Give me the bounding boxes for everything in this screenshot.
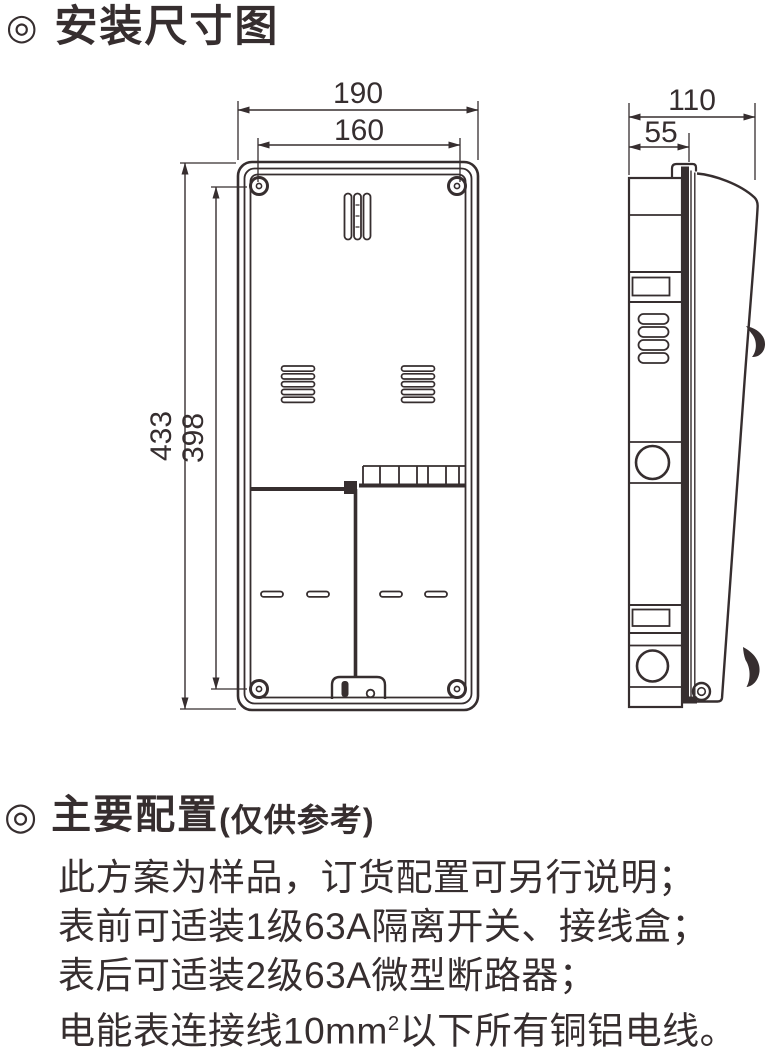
dim-label-110: 110 (668, 84, 716, 117)
terminal-strip (359, 466, 466, 486)
cable-knockout-bottom (637, 651, 668, 682)
configuration-section-header: ◎ 主要配置 (仅供参考) (4, 795, 375, 842)
side-view (629, 164, 765, 707)
config-line-4-suffix: 以下所有铜铝电线。 (400, 1010, 738, 1047)
mounting-screw (251, 681, 268, 698)
mounting-screw (449, 178, 466, 195)
side-section-lines (629, 215, 681, 687)
installation-dimension-drawing: 190 160 433 398 110 (0, 0, 767, 785)
din-bracket-bottom (629, 605, 682, 633)
side-vent-slots (639, 314, 669, 363)
bullseye-icon: ◎ (4, 798, 37, 836)
dim-label-160: 160 (334, 114, 384, 147)
dim-front-mount-height: 398 (177, 187, 247, 689)
bottom-latch (332, 677, 385, 699)
config-line-4-prefix: 电能表连接线10mm (58, 1010, 388, 1047)
dim-front-mount-width: 160 (258, 114, 460, 182)
cover-hook-bottom (743, 647, 760, 687)
config-line-2: 表前可适装1级63A隔离开关、接线盒； (58, 902, 758, 951)
cover-profile (697, 174, 758, 702)
left-vent-grille (282, 366, 315, 402)
mounting-screw (251, 178, 268, 195)
configuration-text: 此方案为样品，订货配置可另行说明； 表前可适装1级63A隔离开关、接线盒； 表后… (58, 853, 758, 1047)
cover-inner-edge (691, 171, 695, 701)
din-bracket-top (629, 272, 682, 302)
config-line-1: 此方案为样品，订货配置可另行说明； (58, 853, 758, 902)
configuration-title: 主要配置 (51, 795, 219, 835)
side-front-bar (681, 167, 689, 704)
datasheet-page: ◎ 安装尺寸图 (0, 0, 767, 1047)
dim-label-398: 398 (177, 413, 210, 463)
dimensions: 190 160 433 398 110 (145, 77, 755, 709)
dim-label-433: 433 (145, 411, 178, 461)
config-line-4-superscript: 2 (388, 1013, 400, 1035)
dim-label-190: 190 (333, 77, 383, 110)
right-vent-grille (402, 366, 435, 402)
bottom-eyelet (693, 683, 710, 700)
config-line-3: 表后可适装2级63A微型断路器； (58, 951, 758, 1000)
dim-label-55: 55 (644, 116, 677, 149)
config-line-4: 电能表连接线10mm2以下所有铜铝电线。 (58, 1000, 758, 1047)
cable-knockout-top (636, 446, 669, 479)
mounting-screw (449, 681, 466, 698)
configuration-title-note: (仅供参考) (219, 795, 374, 841)
top-vent-slots (345, 194, 371, 240)
dim-side-body-depth: 55 (629, 116, 689, 162)
front-shell-outline (238, 162, 478, 710)
front-view (238, 162, 478, 710)
